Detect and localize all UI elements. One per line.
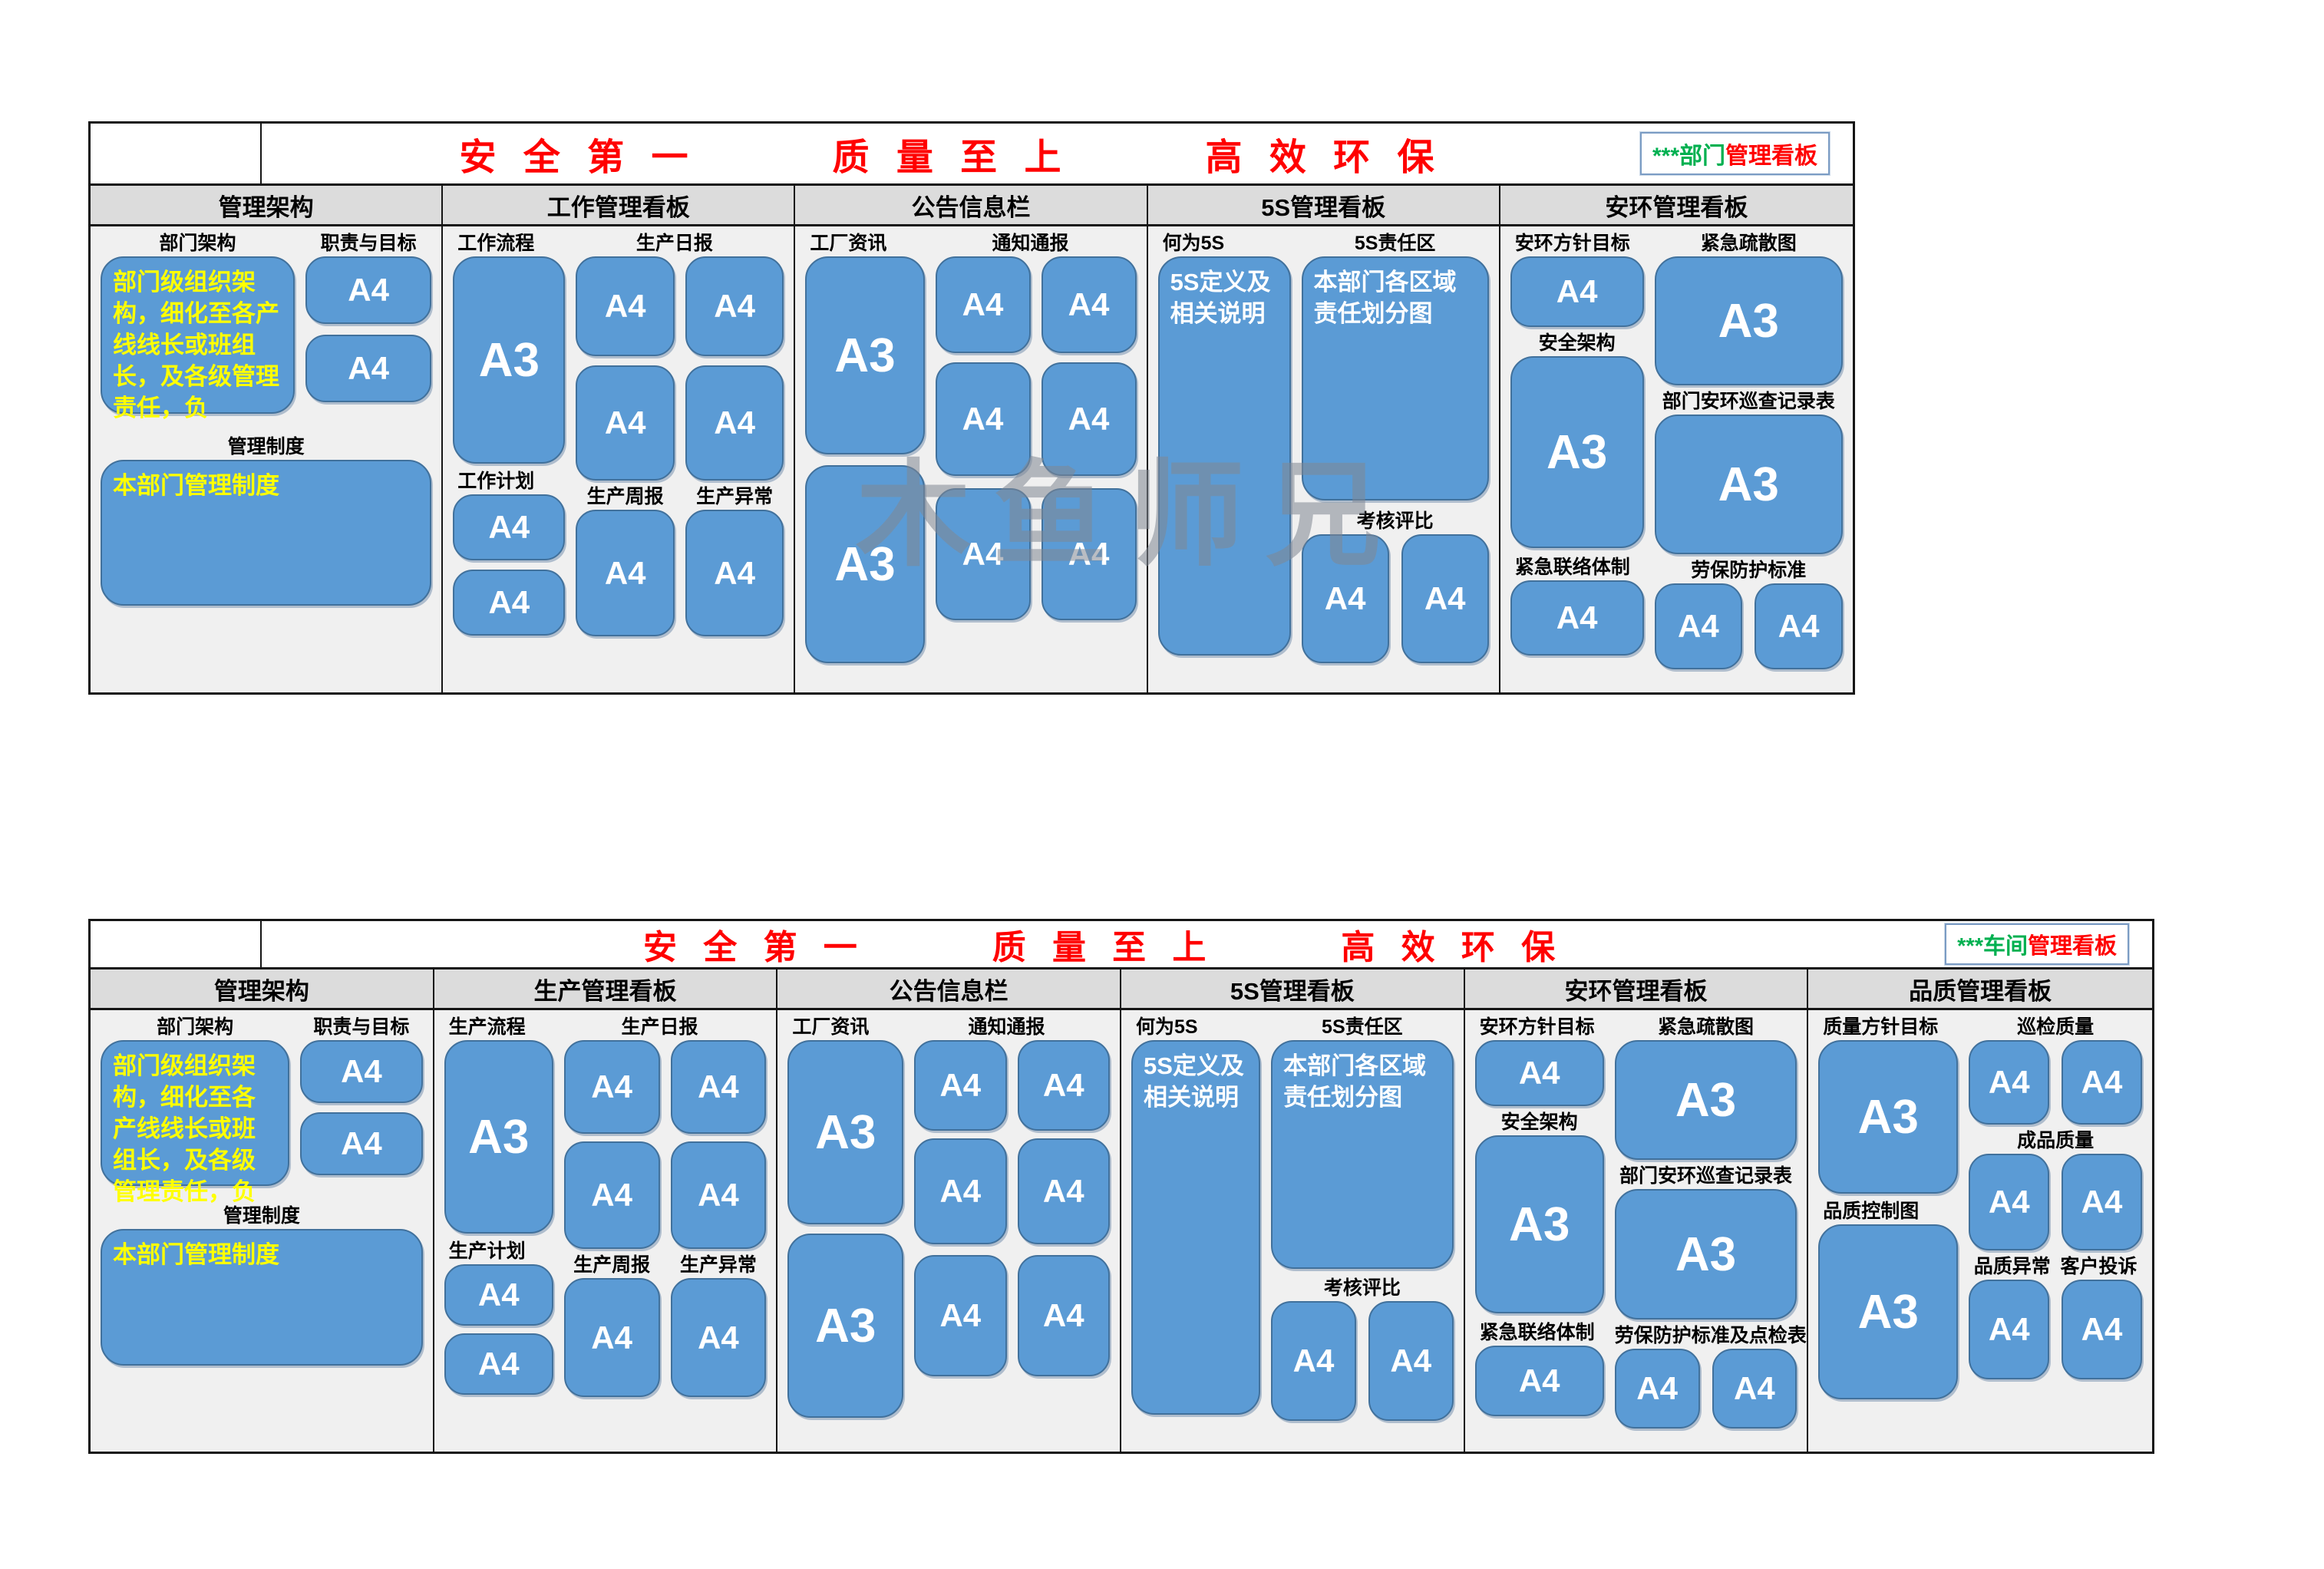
area-label: 管理制度 [101, 1203, 423, 1229]
area-label: 生产周报 [564, 1252, 660, 1278]
paper-a4-box: A4 [936, 362, 1031, 476]
area-label: 部门安环巡查记录表 [1615, 1163, 1797, 1189]
section-header: 公告信息栏 [795, 186, 1147, 224]
section-row: 安环方针目标A4安全架构A3紧急联络体制A4紧急疏散图A3部门安环巡查记录表A3… [1470, 1014, 1803, 1429]
note-box: 本部门各区域责任划分图 [1302, 256, 1489, 500]
paper-pair: A4A4 [1271, 1301, 1454, 1421]
paper-a3-box: A3 [1615, 1189, 1797, 1320]
paper-a4-box: A4 [1042, 362, 1137, 476]
section-column: 部门架构部门级组织架构，细化至各产线线长或班组长，及各级管理责任，负 [95, 1014, 295, 1186]
section-row: 部门架构部门级组织架构，细化至各产线线长或班组长，及各级管理责任，负职责与目标A… [95, 1014, 428, 1186]
section-column: A4A4生产异常A4 [680, 230, 789, 636]
paper-a4-box: A4 [1271, 1301, 1356, 1421]
area-label: 考核评比 [1271, 1275, 1454, 1301]
area-label: 工厂资讯 [787, 1014, 903, 1040]
section-row: 部门架构部门级组织架构，细化至各产线线长或班组长，及各级管理责任，负职责与目标A… [95, 230, 437, 414]
area-label: 品质控制图 [1818, 1198, 1958, 1224]
paper-a3-box: A3 [787, 1234, 903, 1418]
paper-a4-box: A4 [305, 335, 431, 402]
board-section: 部门架构部门级组织架构，细化至各产线线长或班组长，及各级管理责任，负职责与目标A… [91, 226, 443, 692]
section-column: 质量方针目标A3品质控制图A3 [1813, 1014, 1963, 1399]
section-column: 职责与目标A4A4 [300, 230, 437, 414]
section-header: 5S管理看板 [1121, 969, 1465, 1008]
paper-a3-box: A3 [1818, 1040, 1958, 1194]
area-label [671, 1014, 767, 1040]
board-section: 部门架构部门级组织架构，细化至各产线线长或班组长，及各级管理责任，负职责与目标A… [91, 1010, 434, 1452]
paper-a4-box: A4 [453, 494, 565, 560]
section-row: 安环方针目标A4安全架构A3紧急联络体制A4紧急疏散图A3部门安环巡查记录表A3… [1505, 230, 1848, 669]
paper-a4-box: A4 [1969, 1040, 2049, 1125]
board-section: 工作流程A3工作计划A4A4生产日报A4A4生产周报A4A4A4生产异常A4 [443, 226, 795, 692]
area-label: 工厂资讯 [805, 230, 924, 256]
area-label: 安环方针目标 [1510, 230, 1644, 256]
section-column: 安环方针目标A4安全架构A3紧急联络体制A4 [1470, 1014, 1609, 1429]
paper-a4-box: A4 [1475, 1346, 1604, 1416]
section-header-row: 管理架构生产管理看板公告信息栏5S管理看板安环管理看板品质管理看板 [91, 969, 2152, 1010]
section-column: 巡检质量A4A4成品质量A4A4品质异常客户投诉A4A4 [1963, 1014, 2147, 1399]
slogan-text: 安 全 第 一 质 量 至 上 高 效 环 保 [643, 920, 1563, 969]
paper-a4-box: A4 [671, 1141, 767, 1249]
section-header: 公告信息栏 [777, 969, 1121, 1008]
section-header: 安环管理看板 [1465, 969, 1809, 1008]
board-title-row: 安 全 第 一 质 量 至 上 高 效 环 保 ***部门管理看板 [91, 124, 1853, 186]
paper-a4-box: A4 [1401, 534, 1489, 663]
title-empty-cell [91, 124, 262, 183]
paper-a4-box: A4 [1042, 488, 1137, 620]
board-title-row: 安 全 第 一 质 量 至 上 高 效 环 保 ***车间管理看板 [91, 921, 2152, 969]
board-slogan: 安 全 第 一 质 量 至 上 高 效 环 保 [262, 921, 1945, 967]
board-section: 工厂资讯A3A3通知通报A4A4A4A4A4A4 [777, 1010, 1121, 1452]
area-label: 质量方针目标 [1818, 1014, 1958, 1040]
paper-a3-box: A3 [1818, 1224, 1958, 1399]
paper-a4-box: A4 [576, 510, 674, 636]
area-label: 何为5S [1158, 230, 1291, 256]
area-label: 5S责任区 [1271, 1014, 1454, 1040]
area-label: 考核评比 [1302, 508, 1489, 534]
paper-a4-box: A4 [914, 1255, 1006, 1376]
area-label: 部门架构 [101, 230, 295, 256]
area-label: 品质异常 [1969, 1254, 2055, 1280]
paper-a4-box: A4 [2062, 1280, 2142, 1379]
section-row: 管理制度本部门管理制度 [95, 1186, 428, 1366]
badge-red-text: 管理看板 [2028, 934, 2117, 959]
section-column: 何为5S5S定义及相关说明 [1126, 1014, 1266, 1421]
paper-a4-box: A4 [444, 1264, 553, 1326]
section-column: 生产日报A4A4生产周报A4 [559, 1014, 665, 1397]
paper-a4-box: A4 [671, 1278, 767, 1397]
area-label: 职责与目标 [305, 230, 431, 256]
note-box: 本部门管理制度 [101, 460, 431, 606]
paper-a3-box: A3 [805, 256, 924, 454]
section-column: 5S责任区本部门各区域责任划分图考核评比A4A4 [1266, 1014, 1459, 1421]
paper-a4-box: A4 [685, 256, 784, 356]
section-column: 通知通报A4A4A4 [930, 230, 1036, 663]
board-slogan: 安 全 第 一 质 量 至 上 高 效 环 保 [262, 124, 1640, 183]
badge-green-text: ***车间 [1957, 934, 2028, 959]
area-label: 劳保防护标准 [1655, 557, 1843, 583]
paper-a4-box: A4 [685, 365, 784, 481]
paper-a4-box: A4 [1302, 534, 1389, 663]
badge-red-text: 管理看板 [1725, 144, 1817, 169]
department-kanban-board: 安 全 第 一 质 量 至 上 高 效 环 保 ***部门管理看板 管理架构工作… [88, 121, 1855, 695]
paper-a3-box: A3 [453, 256, 565, 464]
paper-a4-box: A4 [1755, 583, 1843, 669]
paper-a4-box: A4 [564, 1040, 660, 1134]
section-row: 生产流程A3生产计划A4A4生产日报A4A4生产周报A4A4A4生产异常A4 [439, 1014, 772, 1397]
section-column: A4A4A4 [1036, 230, 1142, 663]
board-section: 安环方针目标A4安全架构A3紧急联络体制A4紧急疏散图A3部门安环巡查记录表A3… [1500, 226, 1853, 692]
board-name-badge: ***车间管理看板 [1945, 923, 2129, 965]
paper-a4-box: A4 [1510, 256, 1644, 327]
section-column: A4A4A4 [1012, 1014, 1115, 1418]
section-header-row: 管理架构工作管理看板公告信息栏5S管理看板安环管理看板 [91, 186, 1853, 226]
board-section: 工厂资讯A3A3通知通报A4A4A4A4A4A4 [795, 226, 1147, 692]
paper-a4-box: A4 [300, 1040, 422, 1103]
section-header: 品质管理看板 [1808, 969, 2152, 1008]
area-label: 安全架构 [1510, 330, 1644, 356]
paper-a3-box: A3 [1475, 1135, 1604, 1313]
badge-green-text: ***部门 [1652, 144, 1725, 169]
section-column: 工厂资讯A3A3 [800, 230, 929, 663]
paper-a4-box: A4 [564, 1278, 660, 1397]
paper-a3-box: A3 [1510, 356, 1644, 548]
paper-a4-box: A4 [453, 570, 565, 636]
area-label: 职责与目标 [300, 1014, 422, 1040]
section-column: 紧急疏散图A3部门安环巡查记录表A3劳保防护标准A4A4 [1649, 230, 1848, 669]
area-label: 紧急疏散图 [1615, 1014, 1797, 1040]
paper-a4-box: A4 [1655, 583, 1743, 669]
note-box: 5S定义及相关说明 [1158, 256, 1291, 656]
section-row: 工厂资讯A3A3通知通报A4A4A4A4A4A4 [782, 1014, 1115, 1418]
paper-a3-box: A3 [1655, 256, 1843, 385]
section-column: 管理制度本部门管理制度 [95, 414, 437, 606]
paper-a3-box: A3 [1655, 415, 1843, 554]
paper-a4-box: A4 [300, 1112, 422, 1175]
paper-pair: A4A4 [1615, 1349, 1797, 1429]
paper-a4-box: A4 [936, 488, 1031, 620]
area-label: 紧急联络体制 [1475, 1320, 1604, 1346]
area-label: 安环方针目标 [1475, 1014, 1604, 1040]
area-label-pair: 品质异常客户投诉 [1969, 1254, 2142, 1280]
section-column: 紧急疏散图A3部门安环巡查记录表A3劳保防护标准及点检表A4A4 [1609, 1014, 1803, 1429]
note-box: 本部门管理制度 [101, 1229, 423, 1366]
paper-a4-box: A4 [2062, 1040, 2142, 1125]
section-column: 通知通报A4A4A4 [909, 1014, 1012, 1418]
board-section: 生产流程A3生产计划A4A4生产日报A4A4生产周报A4A4A4生产异常A4 [434, 1010, 778, 1452]
paper-a4-box: A4 [1712, 1349, 1797, 1429]
note-box: 部门级组织架构，细化至各产线线长或班组长，及各级管理责任，负 [101, 1040, 289, 1186]
section-column: 5S责任区本部门各区域责任划分图考核评比A4A4 [1296, 230, 1494, 663]
paper-a4-box: A4 [914, 1138, 1006, 1244]
paper-a4-box: A4 [1510, 580, 1644, 656]
area-label: 工作计划 [453, 468, 565, 494]
board-name-badge: ***部门管理看板 [1640, 132, 1830, 175]
section-column: 管理制度本部门管理制度 [95, 1186, 428, 1366]
area-label: 客户投诉 [2055, 1254, 2142, 1280]
section-column: 工作流程A3工作计划A4A4 [447, 230, 570, 636]
note-box: 本部门各区域责任划分图 [1271, 1040, 1454, 1269]
board-content: 部门架构部门级组织架构，细化至各产线线长或班组长，及各级管理责任，负职责与目标A… [91, 1010, 2152, 1452]
area-label: 紧急联络体制 [1510, 554, 1644, 580]
section-column: 生产日报A4A4生产周报A4 [570, 230, 679, 636]
slogan-text: 安 全 第 一 质 量 至 上 高 效 环 保 [459, 127, 1442, 180]
paper-a4-box: A4 [305, 256, 431, 324]
area-label: 管理制度 [101, 434, 431, 460]
section-column: 职责与目标A4A4 [295, 1014, 427, 1186]
paper-pair: A4A4 [1302, 534, 1489, 663]
area-label: 何为5S [1131, 1014, 1260, 1040]
note-box: 5S定义及相关说明 [1131, 1040, 1260, 1415]
paper-a4-box: A4 [1042, 256, 1137, 353]
board-section: 安环方针目标A4安全架构A3紧急联络体制A4紧急疏散图A3部门安环巡查记录表A3… [1465, 1010, 1809, 1452]
section-column: 工厂资讯A3A3 [782, 1014, 909, 1418]
paper-pair: A4A4 [1655, 583, 1843, 669]
section-row: 何为5S5S定义及相关说明5S责任区本部门各区域责任划分图考核评比A4A4 [1153, 230, 1494, 663]
section-column: 何为5S5S定义及相关说明 [1153, 230, 1296, 663]
area-label: 巡检质量 [1969, 1014, 2142, 1040]
paper-a4-box: A4 [444, 1333, 553, 1395]
section-row: 工作流程A3工作计划A4A4生产日报A4A4生产周报A4A4A4生产异常A4 [447, 230, 789, 636]
section-row: 工厂资讯A3A3通知通报A4A4A4A4A4A4 [800, 230, 1141, 663]
paper-pair: A4A4 [1969, 1280, 2142, 1379]
paper-a3-box: A3 [1615, 1040, 1797, 1160]
board-content: 部门架构部门级组织架构，细化至各产线线长或班组长，及各级管理责任，负职责与目标A… [91, 226, 1853, 692]
paper-pair: A4A4 [1969, 1154, 2142, 1250]
note-box: 部门级组织架构，细化至各产线线长或班组长，及各级管理责任，负 [101, 256, 295, 414]
area-label [1018, 1014, 1110, 1040]
paper-a4-box: A4 [1969, 1280, 2049, 1379]
area-label: 生产流程 [444, 1014, 553, 1040]
section-column: 部门架构部门级组织架构，细化至各产线线长或班组长，及各级管理责任，负 [95, 230, 300, 414]
paper-a3-box: A3 [444, 1040, 553, 1234]
area-label: 部门安环巡查记录表 [1655, 388, 1843, 415]
section-header: 5S管理看板 [1148, 186, 1500, 224]
board-section: 何为5S5S定义及相关说明5S责任区本部门各区域责任划分图考核评比A4A4 [1148, 226, 1500, 692]
area-label: 成品质量 [1969, 1128, 2142, 1154]
area-label: 生产周报 [576, 484, 674, 510]
section-column: A4A4生产异常A4 [665, 1014, 772, 1397]
section-row: 质量方针目标A3品质控制图A3巡检质量A4A4成品质量A4A4品质异常客户投诉A… [1813, 1014, 2147, 1399]
area-label: 5S责任区 [1302, 230, 1489, 256]
section-header: 管理架构 [91, 186, 443, 224]
paper-a4-box: A4 [671, 1040, 767, 1134]
paper-a4-box: A4 [1018, 1040, 1110, 1131]
section-column: 安环方针目标A4安全架构A3紧急联络体制A4 [1505, 230, 1649, 669]
area-label: 安全架构 [1475, 1109, 1604, 1135]
area-label: 生产异常 [671, 1252, 767, 1278]
paper-a3-box: A3 [787, 1040, 903, 1224]
paper-a4-box: A4 [914, 1040, 1006, 1131]
paper-a4-box: A4 [685, 510, 784, 636]
paper-a4-box: A4 [1368, 1301, 1454, 1421]
paper-a4-box: A4 [576, 365, 674, 481]
board-section: 质量方针目标A3品质控制图A3巡检质量A4A4成品质量A4A4品质异常客户投诉A… [1808, 1010, 2152, 1452]
area-label: 工作流程 [453, 230, 565, 256]
paper-a4-box: A4 [1969, 1154, 2049, 1250]
paper-pair: A4A4 [1969, 1040, 2142, 1125]
section-header: 生产管理看板 [434, 969, 778, 1008]
paper-a3-box: A3 [805, 465, 924, 663]
section-row: 何为5S5S定义及相关说明5S责任区本部门各区域责任划分图考核评比A4A4 [1126, 1014, 1459, 1421]
paper-a4-box: A4 [936, 256, 1031, 353]
board-section: 何为5S5S定义及相关说明5S责任区本部门各区域责任划分图考核评比A4A4 [1121, 1010, 1465, 1452]
area-label: 劳保防护标准及点检表 [1615, 1323, 1797, 1349]
area-label [685, 230, 784, 256]
section-row: 管理制度本部门管理制度 [95, 414, 437, 606]
paper-a4-box: A4 [1018, 1255, 1110, 1376]
section-header: 工作管理看板 [443, 186, 795, 224]
paper-a4-box: A4 [1475, 1040, 1604, 1106]
area-label: 生产异常 [685, 484, 784, 510]
paper-a4-box: A4 [1018, 1138, 1110, 1244]
title-empty-cell [91, 921, 262, 967]
area-label: 生产计划 [444, 1238, 553, 1264]
area-label [1042, 230, 1137, 256]
paper-a4-box: A4 [2062, 1154, 2142, 1250]
area-label: 紧急疏散图 [1655, 230, 1843, 256]
workshop-kanban-board: 安 全 第 一 质 量 至 上 高 效 环 保 ***车间管理看板 管理架构生产… [88, 919, 2154, 1454]
paper-a4-box: A4 [1615, 1349, 1700, 1429]
paper-a4-box: A4 [576, 256, 674, 356]
area-label: 部门架构 [101, 1014, 289, 1040]
section-header: 安环管理看板 [1500, 186, 1853, 224]
section-column: 生产流程A3生产计划A4A4 [439, 1014, 559, 1397]
section-header: 管理架构 [91, 969, 434, 1008]
paper-a4-box: A4 [564, 1141, 660, 1249]
